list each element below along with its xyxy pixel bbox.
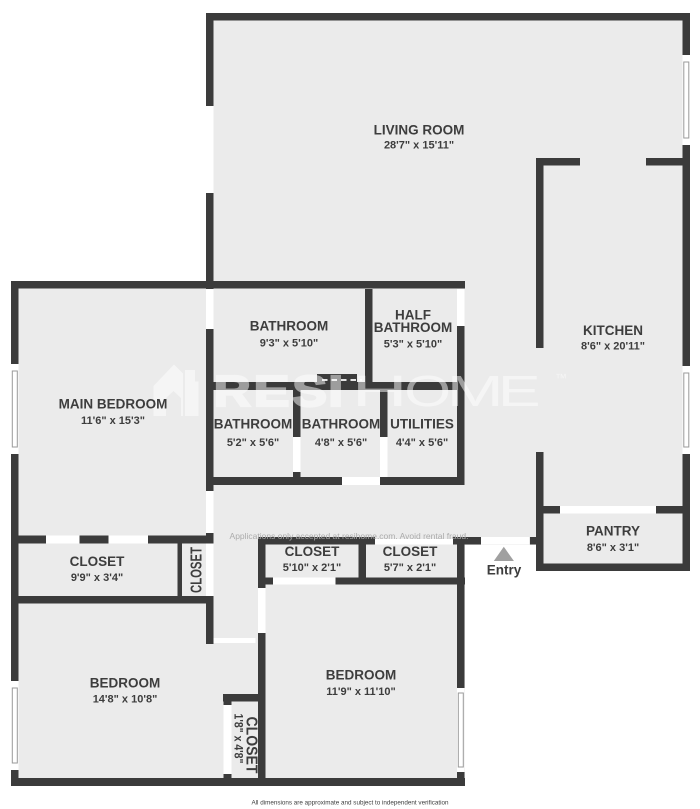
svg-text:5'7" x 2'1": 5'7" x 2'1" [384,562,436,574]
svg-text:5'3" x 5'10": 5'3" x 5'10" [384,339,442,351]
svg-text:BATHROOM: BATHROOM [214,417,293,432]
svg-text:4'4" x 5'6": 4'4" x 5'6" [396,437,448,449]
svg-text:M: M [447,367,504,416]
svg-text:BATHROOM: BATHROOM [250,319,329,334]
svg-text:9'9" x 3'4": 9'9" x 3'4" [71,572,123,584]
svg-text:™: ™ [555,371,567,385]
svg-text:CLOSET: CLOSET [243,717,260,774]
svg-text:5'2" x 5'6": 5'2" x 5'6" [227,437,279,449]
svg-text:LIVING ROOM: LIVING ROOM [374,123,465,138]
svg-text:CLOSET: CLOSET [285,544,341,559]
svg-text:H: H [352,367,408,416]
svg-text:BATHROOM: BATHROOM [302,417,381,432]
svg-text:PANTRY: PANTRY [586,524,640,539]
svg-text:14'8" x 10'8": 14'8" x 10'8" [93,694,158,706]
svg-text:11'9" x 11'10": 11'9" x 11'10" [326,686,396,698]
svg-text:CLOSET: CLOSET [383,544,439,559]
svg-text:R: R [214,367,251,416]
svg-text:1'8" x 4'8": 1'8" x 4'8" [232,714,244,764]
svg-text:CLOSET: CLOSET [70,554,126,569]
svg-text:S: S [292,367,327,416]
svg-text:9'3" x 5'10": 9'3" x 5'10" [260,338,318,350]
svg-text:I: I [328,367,343,415]
svg-text:BATHROOM: BATHROOM [374,320,453,335]
svg-text:CLOSET: CLOSET [188,547,205,593]
svg-text:11'6" x 15'3": 11'6" x 15'3" [81,415,145,427]
svg-text:8'6" x 3'1": 8'6" x 3'1" [587,542,639,554]
svg-text:BEDROOM: BEDROOM [326,668,397,683]
svg-text:Entry: Entry [487,562,522,577]
svg-text:KITCHEN: KITCHEN [583,323,643,338]
svg-text:E: E [498,366,541,416]
svg-text:Applications only accepted at: Applications only accepted at resihome.c… [230,531,469,541]
svg-text:4'8" x 5'6": 4'8" x 5'6" [315,437,367,449]
svg-text:MAIN BEDROOM: MAIN BEDROOM [59,397,168,412]
svg-text:28'7" x 15'11": 28'7" x 15'11" [384,140,454,152]
svg-text:All dimensions are approximate: All dimensions are approximate and subje… [251,800,449,807]
svg-text:E: E [254,367,290,415]
svg-text:UTILITIES: UTILITIES [390,417,454,432]
svg-text:5'10" x 2'1": 5'10" x 2'1" [283,562,341,574]
svg-text:8'6" x 20'11": 8'6" x 20'11" [581,341,645,353]
svg-text:O: O [404,367,451,416]
svg-text:BEDROOM: BEDROOM [90,676,161,691]
